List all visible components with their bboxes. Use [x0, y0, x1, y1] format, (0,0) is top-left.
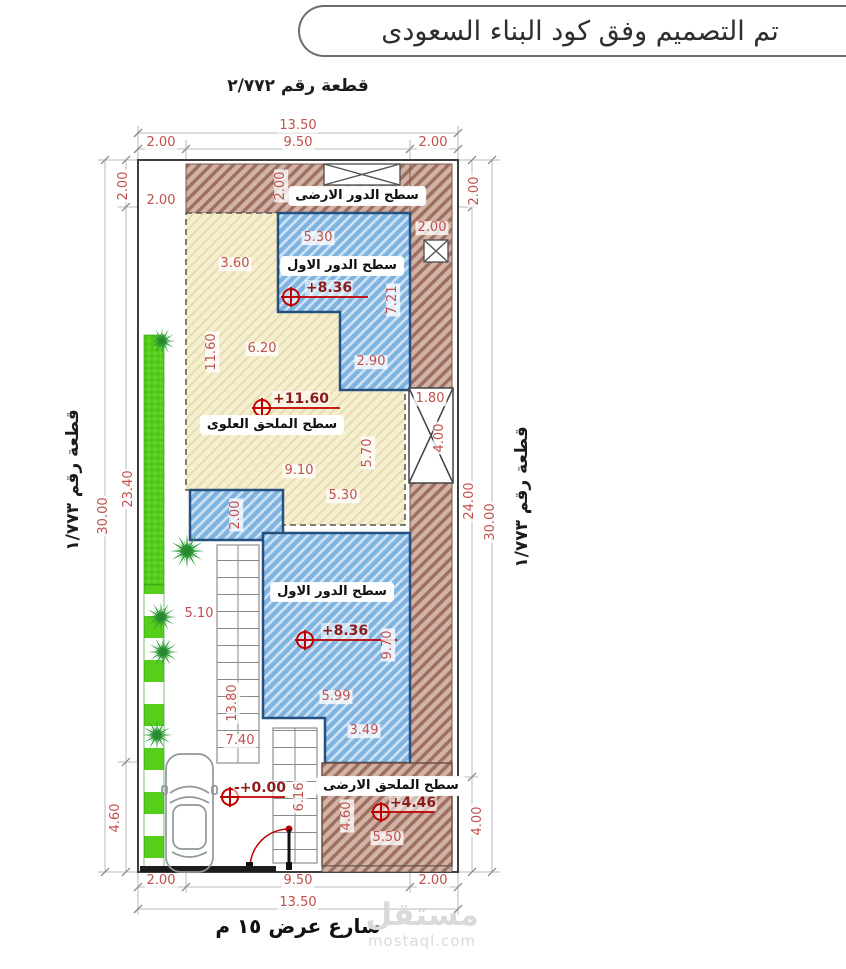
shaft-box: [409, 388, 453, 483]
level-value: +8.36: [305, 280, 353, 296]
title-box: تم التصميم وفق كود البناء السعودى: [298, 5, 846, 57]
watermark-url: mostaql.com: [352, 932, 492, 950]
plot-label-left: قطعة رقم ١/٧٧٣: [63, 409, 83, 550]
region-label-upper-annex: سطح الملحق العلوى: [201, 416, 343, 434]
plot-label-top: قطعة رقم ٢/٧٧٢: [198, 76, 398, 96]
site-plan-page: تم التصميم وفق كود البناء السعودى قطعة ر…: [0, 0, 846, 969]
planting-strip: [144, 335, 164, 585]
crossed-square: [424, 240, 448, 262]
region-label-ground-annex: سطح الملحق الارضى: [317, 777, 465, 795]
region-ground-floor-roof-right-lower: [410, 483, 452, 763]
page-title: تم التصميم وفق كود البناء السعودى: [381, 16, 779, 47]
skylight-top: [324, 164, 400, 185]
plot-label-right: قطعة رقم ١/٧٧٣: [512, 426, 532, 567]
level-value: +11.60: [272, 391, 330, 407]
level-value: +8.36: [321, 623, 369, 639]
site-plan-svg: [0, 0, 846, 969]
bottom-wall-hatched: [322, 866, 452, 872]
level-value: +4.46: [389, 795, 437, 811]
watermark-logo: مستقل: [352, 897, 492, 933]
region-label-ground-roof: سطح الدور الارضى: [289, 187, 425, 205]
region-label-first-roof-mid: سطح الدور الاول: [271, 583, 393, 601]
level-value: -+0.00: [233, 780, 287, 796]
stairs-long: [217, 545, 259, 763]
region-label-first-roof-top: سطح الدور الاول: [281, 257, 403, 275]
